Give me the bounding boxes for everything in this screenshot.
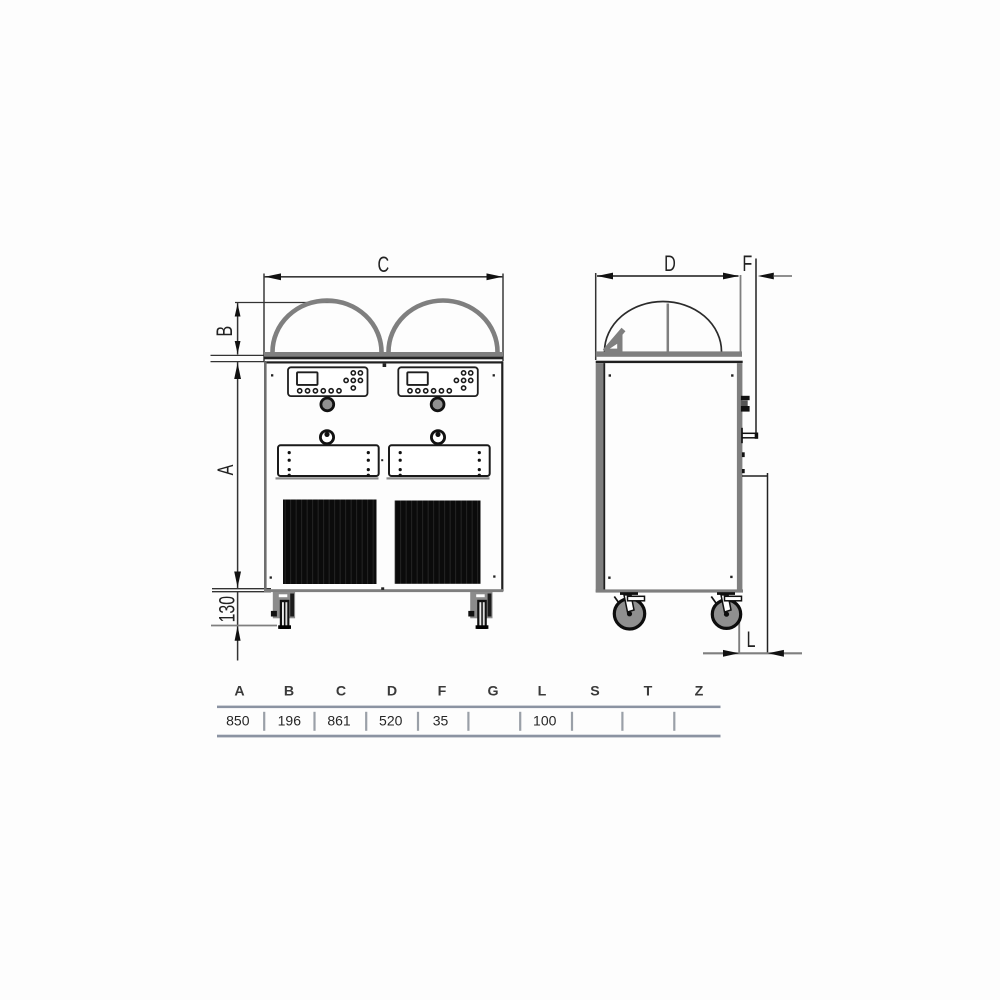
svg-text:B: B (284, 683, 294, 699)
svg-text:520: 520 (379, 712, 403, 728)
svg-text:L: L (746, 627, 755, 652)
svg-text:35: 35 (433, 712, 449, 728)
svg-text:196: 196 (278, 712, 302, 728)
svg-text:861: 861 (327, 712, 351, 728)
svg-text:T: T (644, 683, 653, 699)
svg-text:A: A (213, 464, 238, 476)
svg-text:D: D (664, 251, 676, 276)
svg-text:L: L (538, 683, 547, 699)
svg-text:C: C (377, 252, 389, 277)
svg-text:D: D (387, 683, 397, 699)
svg-text:S: S (590, 683, 599, 699)
svg-text:130: 130 (216, 596, 240, 622)
svg-text:850: 850 (226, 712, 250, 728)
svg-text:F: F (438, 683, 447, 699)
svg-text:G: G (487, 683, 498, 699)
svg-text:100: 100 (533, 712, 557, 728)
svg-text:F: F (742, 251, 752, 276)
svg-text:B: B (213, 326, 238, 337)
svg-text:C: C (336, 683, 346, 699)
svg-text:A: A (234, 683, 244, 699)
svg-text:Z: Z (695, 683, 704, 699)
